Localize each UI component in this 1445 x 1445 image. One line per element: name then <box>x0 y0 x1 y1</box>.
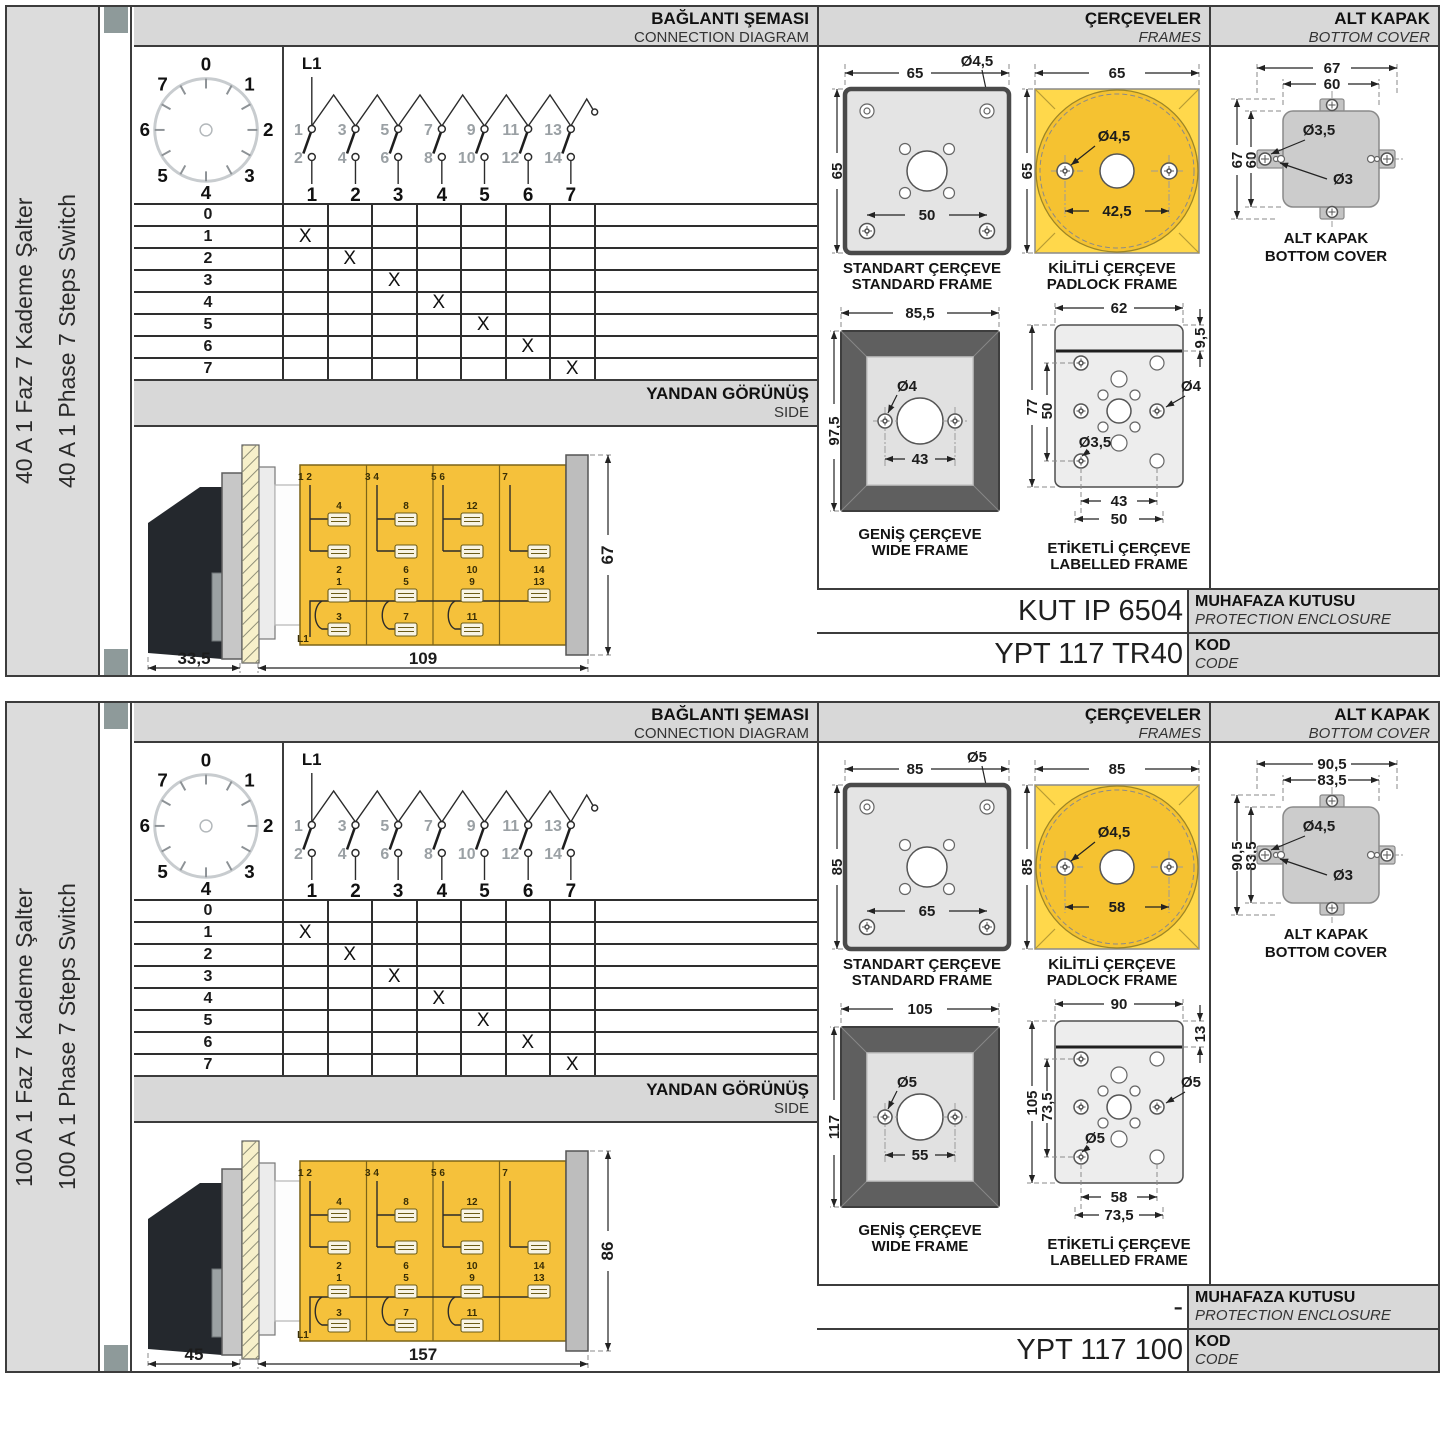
frame-label-tr: KİLİTLİ ÇERÇEVE <box>1048 260 1176 277</box>
dial-position: 2 <box>263 119 273 140</box>
left-title-band: 100 A 1 Faz 7 Kademe Şalter 100 A 1 Phas… <box>7 703 100 1371</box>
contact-number: 12 <box>502 150 520 167</box>
panel-hatch <box>242 1141 259 1359</box>
dim-frame-width: 65 <box>1109 65 1126 82</box>
mounting-screw <box>948 1110 962 1124</box>
pole-number: 5 <box>479 185 489 203</box>
phase-label: L1 <box>297 1330 309 1341</box>
dim-label-tab: 13 <box>1192 1026 1209 1043</box>
dial-figure: 0 1 2 3 4 5 6 7 <box>134 743 282 897</box>
switch-pole: 1 2 1 <box>294 818 317 899</box>
terminal-label: 2 <box>336 1261 342 1272</box>
padlock-frame-block: 85 85 Ø4,5 58 KİLİTLİ ÇERÇEVE PADLOCK FR… <box>1017 749 1207 987</box>
cell <box>507 901 552 923</box>
cell <box>418 1011 463 1033</box>
cell <box>284 205 329 227</box>
mark-cell: X <box>284 227 329 249</box>
step-contact-table: 0 1X 2X 3X 4X 5X 6X 7X <box>134 203 817 379</box>
terminal-pair-label: 3 4 <box>365 472 379 483</box>
bottom-cover-figure: 67 60 67 60 Ø3,5 <box>1221 53 1431 265</box>
cell <box>596 315 818 337</box>
dim-cover-inner-width: 60 <box>1324 76 1341 93</box>
cell <box>329 227 374 249</box>
cell <box>418 205 463 227</box>
spine-marker-bottom <box>104 1345 128 1371</box>
cell <box>462 249 507 271</box>
cell <box>418 923 463 945</box>
wide-frame-figure: 85,5 97,5 Ø4 43 GENİŞ ÇERÇEVE WIDE FRAME <box>827 299 1013 571</box>
dim-cover-outer-width: 90,5 <box>1317 756 1346 773</box>
cell <box>507 967 552 989</box>
cell <box>551 1033 596 1055</box>
step-row-label: 3 <box>134 271 284 293</box>
dim-hole-diameter: Ø4,5 <box>961 53 994 70</box>
dim-frame-width: 105 <box>907 1001 932 1018</box>
cell <box>418 1033 463 1055</box>
mark-cell: X <box>418 293 463 315</box>
cover-header: ALT KAPAK BOTTOM COVER <box>1211 7 1438 47</box>
mounting-screw <box>1074 1052 1088 1066</box>
mounting-screw <box>948 414 962 428</box>
column-divider <box>817 703 819 1371</box>
cell <box>373 337 418 359</box>
frame-label-tr: GENİŞ ÇERÇEVE <box>858 1222 981 1239</box>
dial-position: 4 <box>201 182 212 201</box>
pole-number: 6 <box>523 881 533 899</box>
dim-hole-spacing: 58 <box>1109 899 1126 916</box>
contact-number: 1 <box>294 818 303 835</box>
switch-pole: 5 6 3 <box>380 122 403 203</box>
step-row-label: 5 <box>134 1011 284 1033</box>
cover-screw <box>1327 903 1338 914</box>
header-title-tr: BAĞLANTI ŞEMASI <box>134 705 809 725</box>
dim-hole-diameter: Ø4,5 <box>1098 824 1131 841</box>
dim-hole-spacing: 43 <box>1111 493 1128 510</box>
cell <box>329 1055 374 1077</box>
cell <box>507 1055 552 1077</box>
frames-header: ÇERÇEVELER FRAMES <box>819 703 1209 743</box>
product-title-tr: 100 A 1 Faz 7 Kademe Şalter <box>11 703 51 1371</box>
cell <box>596 249 818 271</box>
cell <box>596 945 818 967</box>
terminal-label: 9 <box>469 577 475 588</box>
enclosure-label-tr: MUHAFAZA KUTUSU <box>1195 1288 1438 1307</box>
mounting-plate <box>222 473 242 659</box>
dim-hole-height: 50 <box>1039 403 1056 420</box>
pole-number: 4 <box>437 881 448 899</box>
header-title-tr: ALT KAPAK <box>1211 705 1430 725</box>
cell <box>284 945 329 967</box>
dim-body-length: 157 <box>409 1345 437 1364</box>
pole-number: 7 <box>566 881 576 899</box>
terminal-label: 5 <box>403 1273 409 1284</box>
contact-number: 4 <box>338 150 347 167</box>
terminal-label: 11 <box>467 1308 478 1319</box>
cover-header: ALT KAPAK BOTTOM COVER <box>1211 703 1438 743</box>
step-row-label: 6 <box>134 1033 284 1055</box>
mark-cell: X <box>462 315 507 337</box>
terminal-label: 8 <box>403 501 409 512</box>
cell <box>551 337 596 359</box>
contact-number: 5 <box>380 818 389 835</box>
enclosure-label-en: PROTECTION ENCLOSURE <box>1195 611 1438 628</box>
contact-figure: L1 1 2 1 3 4 2 5 6 3 <box>286 47 817 203</box>
terminal-pair-label: 5 6 <box>431 472 445 483</box>
cell <box>373 923 418 945</box>
mounting-screw <box>1057 859 1073 875</box>
terminal-label: 4 <box>336 501 342 512</box>
left-title-band: 40 A 1 Faz 7 Kademe Şalter 40 A 1 Phase … <box>7 7 100 675</box>
frame-label-en: STANDARD FRAME <box>852 972 993 987</box>
enclosure-label-tr: MUHAFAZA KUTUSU <box>1195 592 1438 611</box>
dim-hole-diameter: Ø5 <box>967 749 987 766</box>
corner-hole <box>980 104 994 118</box>
cell <box>596 1011 818 1033</box>
mounting-screw <box>1074 1150 1088 1164</box>
spine-strip <box>102 7 132 675</box>
code-label-tr: KOD <box>1195 1332 1438 1351</box>
contact-figure: L1 1 2 1 3 4 2 5 6 3 <box>286 743 817 899</box>
terminal-pair-label: 7 <box>502 472 508 483</box>
switch-pole: 5 6 3 <box>380 818 403 899</box>
cell <box>373 1011 418 1033</box>
switch-pole: 11 12 6 <box>502 818 534 899</box>
labelled-frame-block: 62 9,5 77 50 Ø4 Ø3,5 <box>1019 295 1209 575</box>
step-row-label: 2 <box>134 249 284 271</box>
cell <box>284 271 329 293</box>
labelled-frame-block: 90 13 105 73,5 Ø5 Ø5 <box>1019 991 1209 1271</box>
pole-number: 1 <box>307 185 317 203</box>
cover-screw <box>1327 207 1338 218</box>
contact-number: 10 <box>458 846 476 863</box>
cover-screw <box>1327 796 1338 807</box>
cell <box>596 271 818 293</box>
cover-screw <box>1381 153 1393 165</box>
contact-number: 14 <box>544 846 562 863</box>
mark-cell: X <box>507 337 552 359</box>
cell <box>418 901 463 923</box>
contact-number: 3 <box>338 122 347 139</box>
cell <box>596 1033 818 1055</box>
dim-hole-spacing: 50 <box>919 207 936 224</box>
switch-pole: 1 2 1 <box>294 122 317 203</box>
dim-hole-diameter: Ø4 <box>1181 378 1202 395</box>
header-title-en: FRAMES <box>819 725 1201 742</box>
mark-cell: X <box>551 1055 596 1077</box>
mounting-screw <box>1074 404 1088 418</box>
cell <box>507 315 552 337</box>
cell <box>373 1033 418 1055</box>
corner-screw <box>980 920 995 935</box>
dial-position: 3 <box>244 861 254 882</box>
dial-position: 5 <box>157 165 167 186</box>
dial-figure: 0 1 2 3 4 5 6 7 <box>134 47 282 201</box>
cover-label-tr: ALT KAPAK <box>1284 230 1369 247</box>
terminal-pair-label: 3 4 <box>365 1168 379 1179</box>
mark-cell: X <box>418 989 463 1011</box>
header-title-tr: ALT KAPAK <box>1211 9 1430 29</box>
cell <box>551 249 596 271</box>
panel-hatch <box>242 445 259 663</box>
cell <box>551 967 596 989</box>
terminal-label: 8 <box>403 1197 409 1208</box>
phase-label: L1 <box>302 54 322 73</box>
cell <box>551 205 596 227</box>
phase-label: L1 <box>302 750 322 769</box>
switch-pole: 3 4 2 <box>338 122 361 203</box>
cell <box>462 227 507 249</box>
cell <box>329 1011 374 1033</box>
dim-handle-depth: 33,5 <box>177 649 210 668</box>
dial-position: 7 <box>157 769 167 790</box>
dim-hole-spacing: 43 <box>912 451 929 468</box>
cell <box>329 315 374 337</box>
mounting-screw <box>878 1110 892 1124</box>
contact-number: 8 <box>424 150 433 167</box>
switch-pole: 11 12 6 <box>502 122 534 203</box>
cover-label-tr: ALT KAPAK <box>1284 926 1369 943</box>
terminal-pair-label: 1 2 <box>298 472 312 483</box>
terminal-label: 13 <box>533 577 545 588</box>
cell <box>596 227 818 249</box>
contact-number: 11 <box>502 818 519 835</box>
dim-body-height: 86 <box>598 1242 617 1261</box>
frame-label-en: STANDARD FRAME <box>852 276 993 291</box>
product-title-en: 100 A 1 Phase 7 Steps Switch <box>54 703 94 1371</box>
switch-pole: 9 10 5 <box>458 818 490 899</box>
product-code: YPT 117 100 <box>817 1330 1187 1371</box>
enclosure-label-en: PROTECTION ENCLOSURE <box>1195 1307 1438 1324</box>
side-view-figure: 1 2 4 2 1 3 3 4 8 6 5 7 5 6 12 10 9 11 <box>134 1123 817 1371</box>
code-label-en: CODE <box>1195 655 1438 672</box>
pole-number: 5 <box>479 881 489 899</box>
dim-hole-diameter: Ø4,5 <box>1098 128 1131 145</box>
step-row-label: 4 <box>134 989 284 1011</box>
dim-hole-diameter: Ø5 <box>1181 1074 1201 1091</box>
mounting-screw <box>1161 163 1177 179</box>
dial-position: 0 <box>201 750 211 771</box>
padlock-frame-figure: 85 85 Ø4,5 58 KİLİTLİ ÇERÇEVE PADLOCK FR… <box>1017 749 1207 987</box>
frame-label-en: WIDE FRAME <box>872 1238 969 1255</box>
dim-frame-width: 85,5 <box>905 305 934 322</box>
cell <box>373 359 418 381</box>
code-label-tr: KOD <box>1195 636 1438 655</box>
frame-label-tr: STANDART ÇERÇEVE <box>843 956 1001 973</box>
terminal-label: 10 <box>466 565 478 576</box>
dial-position: 3 <box>244 165 254 186</box>
mark-cell: X <box>373 271 418 293</box>
side-view-header: YANDAN GÖRÜNÜŞ SIDE <box>134 1075 817 1123</box>
dial-position: 6 <box>140 815 150 836</box>
terminal-label: 1 <box>336 1273 342 1284</box>
terminal-label: 6 <box>403 1261 409 1272</box>
cell <box>418 945 463 967</box>
cell <box>284 989 329 1011</box>
dim-body-height: 67 <box>598 546 617 565</box>
cell <box>507 205 552 227</box>
mark-cell: X <box>329 945 374 967</box>
frame-label-en: PADLOCK FRAME <box>1047 276 1178 291</box>
terminal-label: 6 <box>403 565 409 576</box>
wide-frame-figure: 105 117 Ø5 55 GENİŞ ÇERÇEVE WIDE FRAME <box>827 995 1013 1267</box>
header-title-tr: ÇERÇEVELER <box>819 705 1201 725</box>
cell <box>462 337 507 359</box>
cell <box>462 359 507 381</box>
dim-hole-diameter: Ø3 <box>1333 171 1353 188</box>
dim-hole-spacing: 65 <box>919 903 936 920</box>
switch-catalog-section: 40 A 1 Faz 7 Kademe Şalter 40 A 1 Phase … <box>5 5 1440 677</box>
dim-hole-diameter: Ø5 <box>1085 1130 1105 1147</box>
cell <box>596 1055 818 1077</box>
product-title-tr: 40 A 1 Faz 7 Kademe Şalter <box>11 7 51 675</box>
dim-frame-width: 65 <box>907 65 924 82</box>
header-title-en: CONNECTION DIAGRAM <box>134 29 809 46</box>
contact-number: 9 <box>467 122 476 139</box>
contact-number: 2 <box>294 150 303 167</box>
step-row-label: 1 <box>134 923 284 945</box>
corner-screw <box>980 224 995 239</box>
dial-position: 6 <box>140 119 150 140</box>
cell <box>507 249 552 271</box>
dim-hole-spacing: 58 <box>1111 1189 1128 1206</box>
contact-number: 1 <box>294 122 303 139</box>
cell <box>462 205 507 227</box>
pole-number: 2 <box>350 881 360 899</box>
terminal-label: 9 <box>469 1273 475 1284</box>
contact-number: 9 <box>467 818 476 835</box>
spine-marker-top <box>104 703 128 729</box>
cell <box>284 967 329 989</box>
switch-pole: 7 8 4 <box>424 818 447 899</box>
frame-label-tr: GENİŞ ÇERÇEVE <box>858 526 981 543</box>
step-row-label: 5 <box>134 315 284 337</box>
dim-hole-diameter: Ø3,5 <box>1079 434 1112 451</box>
frame-label-en: LABELLED FRAME <box>1050 1252 1188 1269</box>
terminal-label: 5 <box>403 577 409 588</box>
terminal-pair-label: 1 2 <box>298 1168 312 1179</box>
mounting-screw <box>1150 404 1164 418</box>
frame-label-en: WIDE FRAME <box>872 542 969 559</box>
cell <box>329 1033 374 1055</box>
cell <box>373 1055 418 1077</box>
terminal-label: 3 <box>336 1308 342 1319</box>
dim-hole-spacing: 55 <box>912 1147 929 1164</box>
cell <box>329 923 374 945</box>
frame-label-tr: STANDART ÇERÇEVE <box>843 260 1001 277</box>
bottom-cover-block: 90,5 83,5 90,5 83,5 Ø4 <box>1221 749 1431 961</box>
contact-number: 12 <box>502 846 520 863</box>
column-divider <box>817 7 819 675</box>
header-title-tr: YANDAN GÖRÜNÜŞ <box>134 384 809 404</box>
switch-pole: 13 14 7 <box>544 818 576 899</box>
dim-frame-height: 65 <box>1019 163 1036 180</box>
cell <box>596 293 818 315</box>
terminal-label: 7 <box>403 612 409 623</box>
contact-number: 10 <box>458 150 476 167</box>
cell <box>418 359 463 381</box>
end-plate <box>566 455 588 655</box>
cell <box>418 967 463 989</box>
cell <box>462 945 507 967</box>
cell <box>284 293 329 315</box>
terminal-pair-label: 7 <box>502 1168 508 1179</box>
cell <box>284 901 329 923</box>
cell <box>462 901 507 923</box>
dial-position: 2 <box>263 815 273 836</box>
cell <box>507 359 552 381</box>
code-label: KOD CODE <box>1187 1330 1438 1371</box>
mark-cell: X <box>329 249 374 271</box>
mounting-screw <box>1074 1100 1088 1114</box>
contact-number: 7 <box>424 818 433 835</box>
cover-screw <box>1259 849 1271 861</box>
switch-handle <box>148 1183 222 1355</box>
dial-position: 5 <box>157 861 167 882</box>
code-label-en: CODE <box>1195 1351 1438 1368</box>
cover-label-en: BOTTOM COVER <box>1265 944 1387 961</box>
frame-label-tr: ETİKETLİ ÇERÇEVE <box>1047 540 1190 557</box>
terminal-label: 12 <box>466 1197 478 1208</box>
cell <box>507 227 552 249</box>
header-title-en: SIDE <box>134 404 809 421</box>
wide-frame-block: 85,5 97,5 Ø4 43 GENİŞ ÇERÇEVE WIDE FRAME <box>827 299 1013 571</box>
pole-number: 3 <box>393 881 403 899</box>
cell <box>596 967 818 989</box>
dim-hole-diameter: Ø3 <box>1333 867 1353 884</box>
labelled-frame-figure: 90 13 105 73,5 Ø5 Ø5 <box>1019 991 1209 1271</box>
step-row-label: 7 <box>134 359 284 381</box>
contact-number: 14 <box>544 150 562 167</box>
header-title-en: BOTTOM COVER <box>1211 29 1430 46</box>
dim-hole-diameter: Ø4,5 <box>1303 818 1336 835</box>
side-view-figure: 1 2 4 2 1 3 3 4 8 6 5 7 5 6 12 10 9 11 <box>134 427 817 675</box>
dim-frame-width: 90 <box>1111 996 1128 1013</box>
cell <box>507 989 552 1011</box>
padlock-frame-figure: 65 65 Ø4,5 42,5 KİLİTLİ ÇERÇEVE PADLOCK … <box>1017 53 1207 291</box>
contact-number: 2 <box>294 846 303 863</box>
end-plate <box>566 1151 588 1351</box>
dial-position: 0 <box>201 54 211 75</box>
side-view-header: YANDAN GÖRÜNÜŞ SIDE <box>134 379 817 427</box>
rotary-dial-panel: 0 1 2 3 4 5 6 7 <box>134 47 284 203</box>
rotary-dial-panel: 0 1 2 3 4 5 6 7 <box>134 743 284 899</box>
cell <box>329 967 374 989</box>
enclosure-code: KUT IP 6504 <box>817 590 1187 632</box>
header-title-tr: BAĞLANTI ŞEMASI <box>134 9 809 29</box>
contact-number: 13 <box>544 818 562 835</box>
mounting-plate <box>222 1169 242 1355</box>
cell <box>596 989 818 1011</box>
step-row-label: 3 <box>134 967 284 989</box>
header-title-tr: ÇERÇEVELER <box>819 9 1201 29</box>
terminal-label: 14 <box>533 1261 545 1272</box>
side-view-drawing: 1 2 4 2 1 3 3 4 8 6 5 7 5 6 12 10 9 11 <box>134 1123 817 1371</box>
cell <box>507 923 552 945</box>
cell <box>507 271 552 293</box>
corner-hole <box>860 104 874 118</box>
cover-screw <box>1381 849 1393 861</box>
standard-frame-block: 85 Ø5 85 65 STANDART ÇERÇEVE STANDARD FR… <box>827 749 1017 987</box>
terminal-label: 2 <box>336 565 342 576</box>
spine-strip <box>102 703 132 1371</box>
dim-hole-diameter: Ø3,5 <box>1303 122 1336 139</box>
cell <box>373 901 418 923</box>
standard-frame-block: 65 Ø4,5 65 50 STANDART ÇERÇEVE STANDARD … <box>827 53 1017 291</box>
padlock-frame-block: 65 65 Ø4,5 42,5 KİLİTLİ ÇERÇEVE PADLOCK … <box>1017 53 1207 291</box>
cell <box>462 1055 507 1077</box>
cell <box>551 1011 596 1033</box>
mounting-screw <box>1074 356 1088 370</box>
